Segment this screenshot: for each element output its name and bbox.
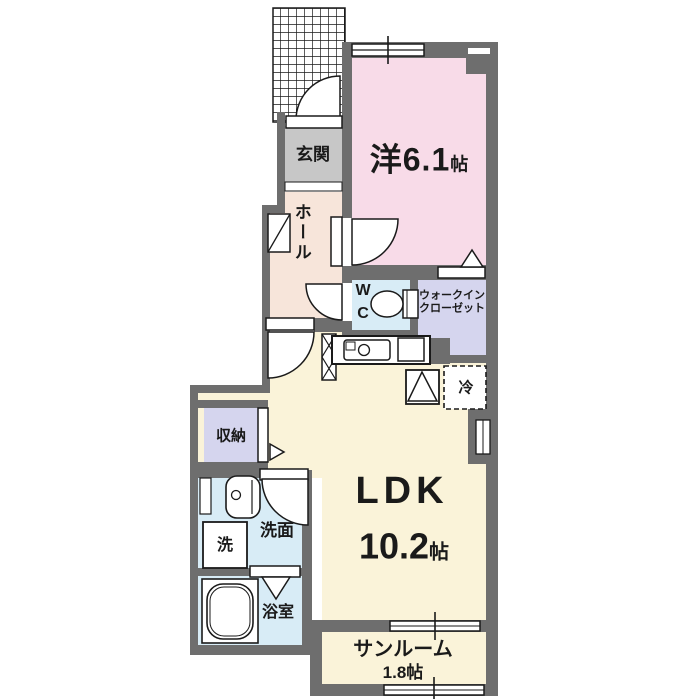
shoe-cabinet-icon [268, 214, 290, 252]
toilet-icon [371, 290, 418, 318]
label-wc-line1: W [355, 282, 370, 300]
wall-storage-top [198, 400, 268, 408]
wall-left [190, 385, 198, 655]
vent-top-right [468, 48, 490, 54]
label-sunroom: サンルーム [353, 639, 452, 662]
floorplan-canvas: 玄関 ホール 洋6.1帖 W C ウォークイン クローゼット 冷 収納 洗 洗面… [0, 0, 700, 700]
label-western-unit: 帖 [450, 155, 468, 175]
washbasin-icon [226, 476, 260, 518]
label-refrigerator: 冷 [458, 379, 473, 396]
porch [273, 8, 345, 122]
washroom-side-window [200, 478, 211, 514]
wall-jog-lower [190, 385, 270, 393]
label-washroom: 洗面 [260, 521, 294, 541]
label-washer: 洗 [217, 537, 233, 555]
label-wc-line2: C [357, 305, 369, 323]
label-wic-line2: クローゼット [419, 303, 485, 316]
label-ldk: LDK [355, 470, 448, 514]
wall-kitchen-right [428, 338, 450, 364]
cupboard-icon [406, 370, 439, 404]
label-ldk-size-value: 10.2 [359, 525, 429, 566]
wall-storage-bottom [198, 462, 268, 470]
label-storage: 収納 [216, 427, 246, 444]
entrance-door-leaf [286, 116, 342, 128]
bathtub-icon [202, 579, 258, 643]
stove-icon [398, 338, 424, 361]
wall-entrance-left [277, 112, 285, 213]
label-genkan: 玄関 [296, 145, 330, 165]
label-sunroom-size: 1.8帖 [383, 663, 424, 683]
label-western-room: 洋6.1帖 [370, 142, 469, 179]
wall-notch [466, 58, 486, 74]
label-ldk-size: 10.2帖 [359, 525, 449, 566]
label-hall: ホール [291, 203, 311, 263]
faucet-icon [359, 345, 370, 356]
label-bathroom: 浴室 [262, 604, 294, 622]
floorplan-drawing [0, 0, 700, 700]
label-wic-line1: ウォークイン [419, 290, 485, 303]
window-ldk-right [476, 420, 490, 454]
label-ldk-size-unit: 帖 [429, 541, 449, 563]
wall-right [486, 42, 498, 696]
label-western-size: 洋6.1 [370, 142, 451, 178]
genkan-step [285, 182, 342, 191]
kitchen-counter-icon [332, 336, 430, 364]
wall-bath-bottom [190, 645, 312, 655]
